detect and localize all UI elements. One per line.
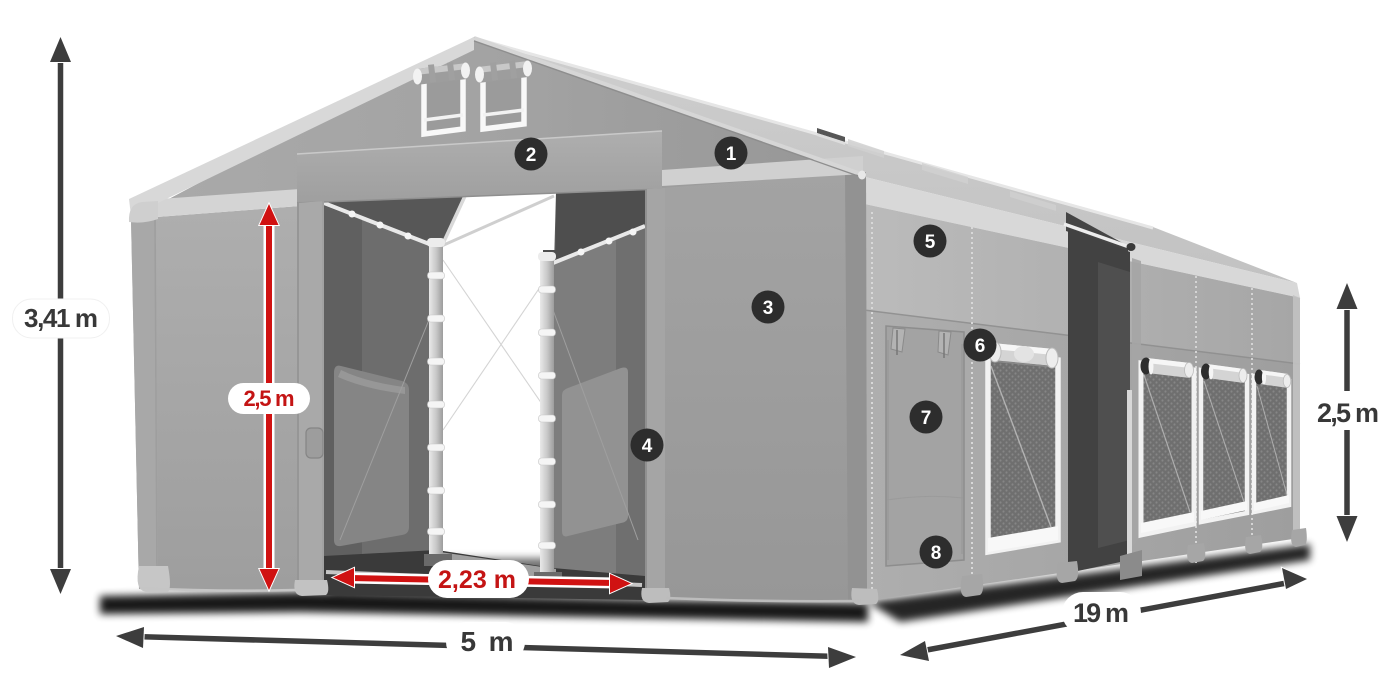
svg-text:2,5 m: 2,5 m	[244, 386, 295, 411]
svg-text:1: 1	[726, 144, 737, 165]
svg-text:2,5 m: 2,5 m	[1317, 398, 1379, 428]
svg-text:8: 8	[931, 543, 942, 564]
svg-text:19 m: 19 m	[1073, 598, 1129, 628]
svg-text:6: 6	[975, 336, 986, 357]
svg-text:2: 2	[526, 145, 537, 166]
svg-text:3,41 m: 3,41 m	[24, 303, 98, 333]
svg-text:3: 3	[763, 298, 774, 319]
svg-text:2,23 m: 2,23 m	[438, 566, 516, 594]
svg-text:4: 4	[642, 436, 653, 457]
svg-text:5: 5	[925, 232, 936, 253]
svg-text:7: 7	[921, 408, 932, 429]
